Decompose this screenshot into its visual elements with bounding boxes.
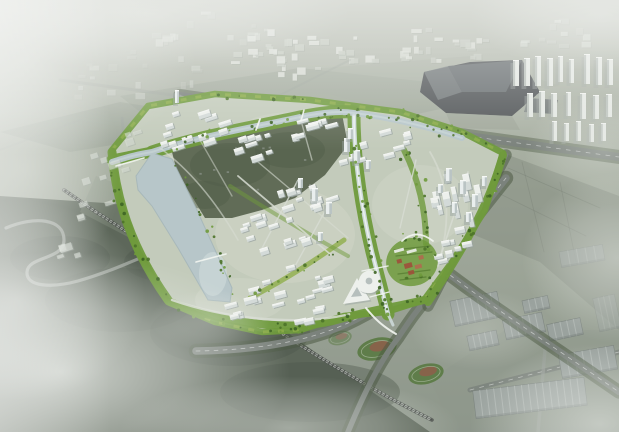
tree — [381, 295, 383, 297]
tree — [283, 323, 287, 327]
tree — [317, 256, 319, 258]
tree — [383, 298, 386, 301]
tree — [363, 190, 365, 192]
tree — [268, 291, 270, 293]
site-tower-roof — [312, 188, 318, 189]
tree — [348, 319, 351, 322]
site-tower-side — [315, 188, 318, 201]
tree — [488, 194, 491, 197]
tree — [229, 275, 231, 277]
tree — [213, 235, 216, 238]
site-tower-roof — [366, 160, 371, 161]
tree — [495, 190, 497, 192]
tree — [358, 186, 360, 188]
tree — [497, 173, 499, 175]
site-tower-roof — [326, 202, 332, 203]
tree — [277, 322, 279, 324]
tree — [502, 160, 505, 163]
site-tower-side — [321, 232, 323, 241]
tree — [434, 254, 436, 256]
tree — [413, 237, 416, 240]
tree — [424, 211, 427, 214]
site-tower-roof — [452, 202, 457, 203]
site-tower-side — [329, 202, 332, 214]
tree — [290, 328, 293, 331]
existing-house — [199, 173, 201, 175]
tree — [427, 248, 431, 252]
tree — [361, 200, 364, 203]
fog-patch — [150, 290, 270, 350]
tree — [211, 225, 213, 227]
tree — [427, 246, 429, 248]
tree — [446, 275, 449, 278]
tree — [301, 332, 303, 334]
tree — [275, 325, 277, 327]
tree — [314, 261, 316, 263]
render-canvas — [0, 0, 619, 432]
tree — [131, 239, 134, 242]
tree — [455, 255, 457, 257]
tree — [174, 165, 176, 167]
tree — [364, 205, 367, 208]
tree — [279, 326, 281, 328]
tree — [416, 295, 419, 298]
tree — [419, 273, 423, 277]
tree — [399, 158, 402, 161]
tree — [146, 257, 150, 261]
tree — [342, 318, 345, 321]
site-tower-side — [475, 194, 478, 207]
tree — [328, 254, 330, 256]
aerial-masterplan-render — [0, 0, 619, 432]
tree — [436, 292, 439, 295]
tree — [358, 175, 360, 177]
tree — [297, 331, 300, 334]
tree — [122, 212, 126, 216]
tree — [418, 238, 421, 241]
tree — [502, 163, 504, 165]
tree — [417, 302, 420, 305]
existing-house — [257, 189, 259, 191]
tree — [385, 303, 387, 305]
site-tower-side — [301, 178, 303, 188]
tree — [346, 315, 350, 319]
tree — [417, 205, 419, 207]
tree — [285, 276, 287, 278]
existing-house — [304, 159, 306, 161]
tree — [378, 280, 381, 283]
tree — [374, 271, 377, 274]
tree — [448, 262, 451, 265]
tree — [406, 300, 409, 303]
tree — [468, 229, 471, 232]
site-tower-roof — [482, 176, 487, 177]
tree — [462, 235, 464, 237]
tree — [423, 247, 426, 250]
building-glass — [438, 210, 443, 215]
tree — [303, 270, 305, 272]
tree — [425, 243, 428, 246]
tree — [297, 269, 299, 271]
site-tower-side — [441, 184, 443, 193]
site-tower-roof — [460, 180, 466, 181]
site-tower-roof — [446, 168, 452, 169]
tree — [337, 312, 340, 315]
tree — [426, 226, 429, 229]
tree — [381, 302, 385, 306]
tree — [369, 255, 373, 259]
existing-house — [227, 171, 229, 173]
tree — [186, 183, 189, 186]
tree — [345, 313, 347, 315]
site-tower-roof — [466, 212, 471, 213]
tree — [405, 277, 408, 280]
tree — [337, 241, 339, 243]
site-tower-side — [485, 176, 487, 186]
tree — [386, 312, 390, 316]
tree — [360, 211, 362, 213]
site-tower-side — [449, 168, 452, 181]
tree — [415, 171, 418, 174]
tree — [361, 225, 364, 228]
tree — [253, 291, 257, 295]
tree — [429, 288, 431, 290]
site-tower-roof — [318, 232, 323, 233]
site-tower-side — [469, 212, 471, 222]
fog-patch — [410, 290, 550, 370]
tree — [375, 235, 378, 238]
tree — [390, 298, 393, 301]
tree — [122, 221, 125, 224]
tree — [415, 183, 418, 186]
tree — [131, 244, 133, 246]
tree — [294, 327, 297, 330]
tree — [424, 221, 426, 223]
tree — [368, 238, 370, 240]
tree — [367, 244, 370, 247]
existing-house — [213, 169, 215, 171]
tree — [386, 308, 388, 310]
tree — [277, 280, 280, 283]
tree — [133, 247, 135, 249]
tree — [199, 213, 202, 216]
site-tower-side — [369, 160, 371, 169]
tree — [303, 263, 307, 267]
tree — [134, 253, 136, 255]
tree — [205, 229, 209, 233]
tree — [219, 260, 222, 263]
tree — [494, 179, 496, 181]
tree — [405, 154, 407, 156]
tree — [420, 301, 422, 303]
tree — [472, 232, 475, 235]
site-tower-side — [357, 150, 360, 163]
tree — [378, 286, 382, 290]
tree — [432, 282, 434, 284]
left-haze-veil — [0, 0, 110, 432]
tree — [280, 331, 282, 333]
tree — [415, 231, 418, 234]
tree — [383, 307, 385, 309]
tree — [222, 272, 224, 274]
tree — [428, 276, 431, 279]
tree — [499, 167, 502, 170]
tree — [354, 161, 357, 164]
tree — [258, 288, 262, 292]
site-tower-side — [455, 202, 457, 213]
signature-courtyard — [366, 278, 373, 285]
tree — [412, 300, 414, 302]
tree — [458, 252, 460, 254]
tree — [223, 266, 226, 269]
tree — [271, 283, 273, 285]
tree — [419, 295, 421, 297]
tree — [427, 296, 429, 298]
tree — [370, 213, 372, 215]
site-tower-roof — [438, 184, 443, 185]
tree — [195, 198, 197, 200]
tree — [369, 250, 371, 252]
tree — [184, 176, 186, 178]
tree — [366, 202, 369, 205]
tree — [332, 254, 334, 256]
tree — [220, 269, 223, 272]
site-tower-roof — [472, 194, 478, 195]
tree — [438, 271, 440, 273]
tree — [380, 259, 383, 262]
tree — [350, 313, 352, 315]
site-tower-roof — [298, 178, 303, 179]
tree — [351, 308, 354, 311]
tree — [402, 233, 404, 235]
tree — [478, 218, 480, 220]
tree — [321, 319, 325, 323]
tree — [120, 202, 124, 206]
tree — [298, 325, 301, 328]
tree — [423, 195, 426, 198]
tree — [198, 211, 200, 213]
site-tower-side — [463, 180, 466, 194]
tree — [133, 235, 135, 237]
tree — [424, 178, 428, 182]
tree — [425, 231, 428, 234]
